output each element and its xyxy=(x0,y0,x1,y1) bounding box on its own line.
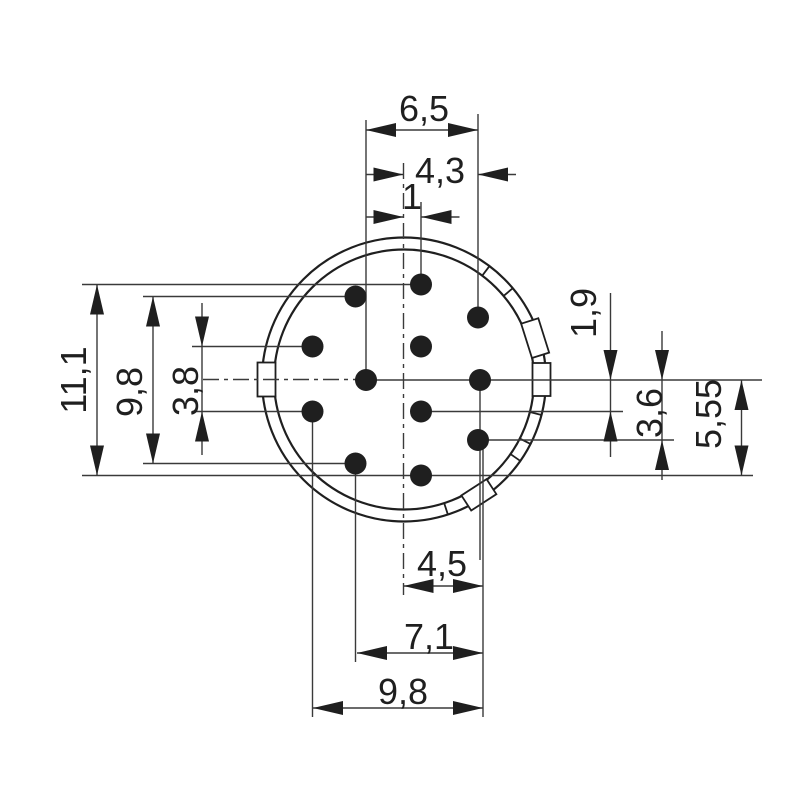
dim-4-3-label: 4,3 xyxy=(415,150,465,191)
ring-segment-tick xyxy=(530,412,542,415)
contact-pin-11 xyxy=(345,453,367,475)
dimension-arrowhead xyxy=(374,168,404,182)
dim-4-5-label: 4,5 xyxy=(417,543,467,584)
dimension-arrowhead xyxy=(146,434,160,464)
connector-insert-drawing: 6,54,3111,19,83,81,93,65,554,57,19,8 xyxy=(0,0,800,800)
dimension-arrowhead xyxy=(357,646,387,660)
dim-9-8-bottom: 9,8 xyxy=(313,671,483,715)
dimension-arrowhead xyxy=(448,123,478,137)
dim-5-55-label: 5,55 xyxy=(688,379,729,449)
dim-7-1: 7,1 xyxy=(357,616,483,660)
dimension-arrowhead xyxy=(90,285,104,315)
dimension-arrowhead xyxy=(735,446,749,476)
dim-1-9-label: 1,9 xyxy=(563,288,604,338)
dimension-arrowhead xyxy=(478,168,508,182)
dimension-arrowhead xyxy=(146,297,160,327)
dim-11-1: 11,1 xyxy=(53,285,104,476)
dim-3-8-label: 3,8 xyxy=(165,366,206,416)
contact-pin-3 xyxy=(467,307,489,329)
dimension-arrowhead xyxy=(604,350,618,380)
contact-pin-4 xyxy=(302,336,324,358)
contact-pin-8 xyxy=(302,401,324,423)
dimension-arrowhead xyxy=(374,210,404,224)
contact-pin-9 xyxy=(410,401,432,423)
dimension-arrowhead xyxy=(422,210,452,224)
dimension-arrowhead xyxy=(313,701,343,715)
dim-6-5-label: 6,5 xyxy=(399,88,449,129)
dim-11-1-label: 11,1 xyxy=(53,346,94,413)
dim-3-6-label: 3,6 xyxy=(629,388,670,438)
dimension-arrowhead xyxy=(90,446,104,476)
dim-1-label: 1 xyxy=(402,176,422,217)
contact-pin-12 xyxy=(410,465,432,487)
dim-9-8-left-label: 9,8 xyxy=(109,367,150,417)
dim-3-8: 3,8 xyxy=(165,303,209,455)
dim-4-5: 4,5 xyxy=(404,543,484,593)
technical-drawing-page: 6,54,3111,19,83,81,93,65,554,57,19,8 xyxy=(0,0,800,800)
contact-pin-1 xyxy=(410,274,432,296)
dim-3-6: 3,6 xyxy=(629,331,670,480)
keyway-segment xyxy=(521,318,549,358)
dimension-arrowhead xyxy=(604,412,618,442)
dim-7-1-label: 7,1 xyxy=(404,616,454,657)
dim-5-55: 5,55 xyxy=(688,379,749,476)
contact-pin-2 xyxy=(345,286,367,308)
dimension-arrowhead xyxy=(366,123,396,137)
ring-segment-tick xyxy=(510,454,520,461)
ring-segment-tick xyxy=(504,288,513,296)
ring-segment-tick xyxy=(482,266,489,276)
dimension-arrowhead xyxy=(655,350,669,380)
dim-9-8-left: 9,8 xyxy=(109,297,160,464)
contact-pin-5 xyxy=(410,336,432,358)
dimension-arrowhead xyxy=(195,317,209,347)
dimension-arrowhead xyxy=(735,380,749,410)
dim-1-9: 1,9 xyxy=(563,288,618,457)
ring-segment-tick xyxy=(444,503,448,514)
dimension-arrowhead xyxy=(655,440,669,470)
contact-pin-10 xyxy=(467,429,489,451)
dimension-arrowhead xyxy=(453,646,483,660)
dimension-arrowhead xyxy=(453,701,483,715)
contact-pin-7 xyxy=(469,369,491,391)
dim-9-8-bottom-label: 9,8 xyxy=(378,671,428,712)
contact-pin-6 xyxy=(355,369,377,391)
dim-4-3: 4,3 xyxy=(366,150,517,191)
dim-6-5: 6,5 xyxy=(366,88,478,137)
